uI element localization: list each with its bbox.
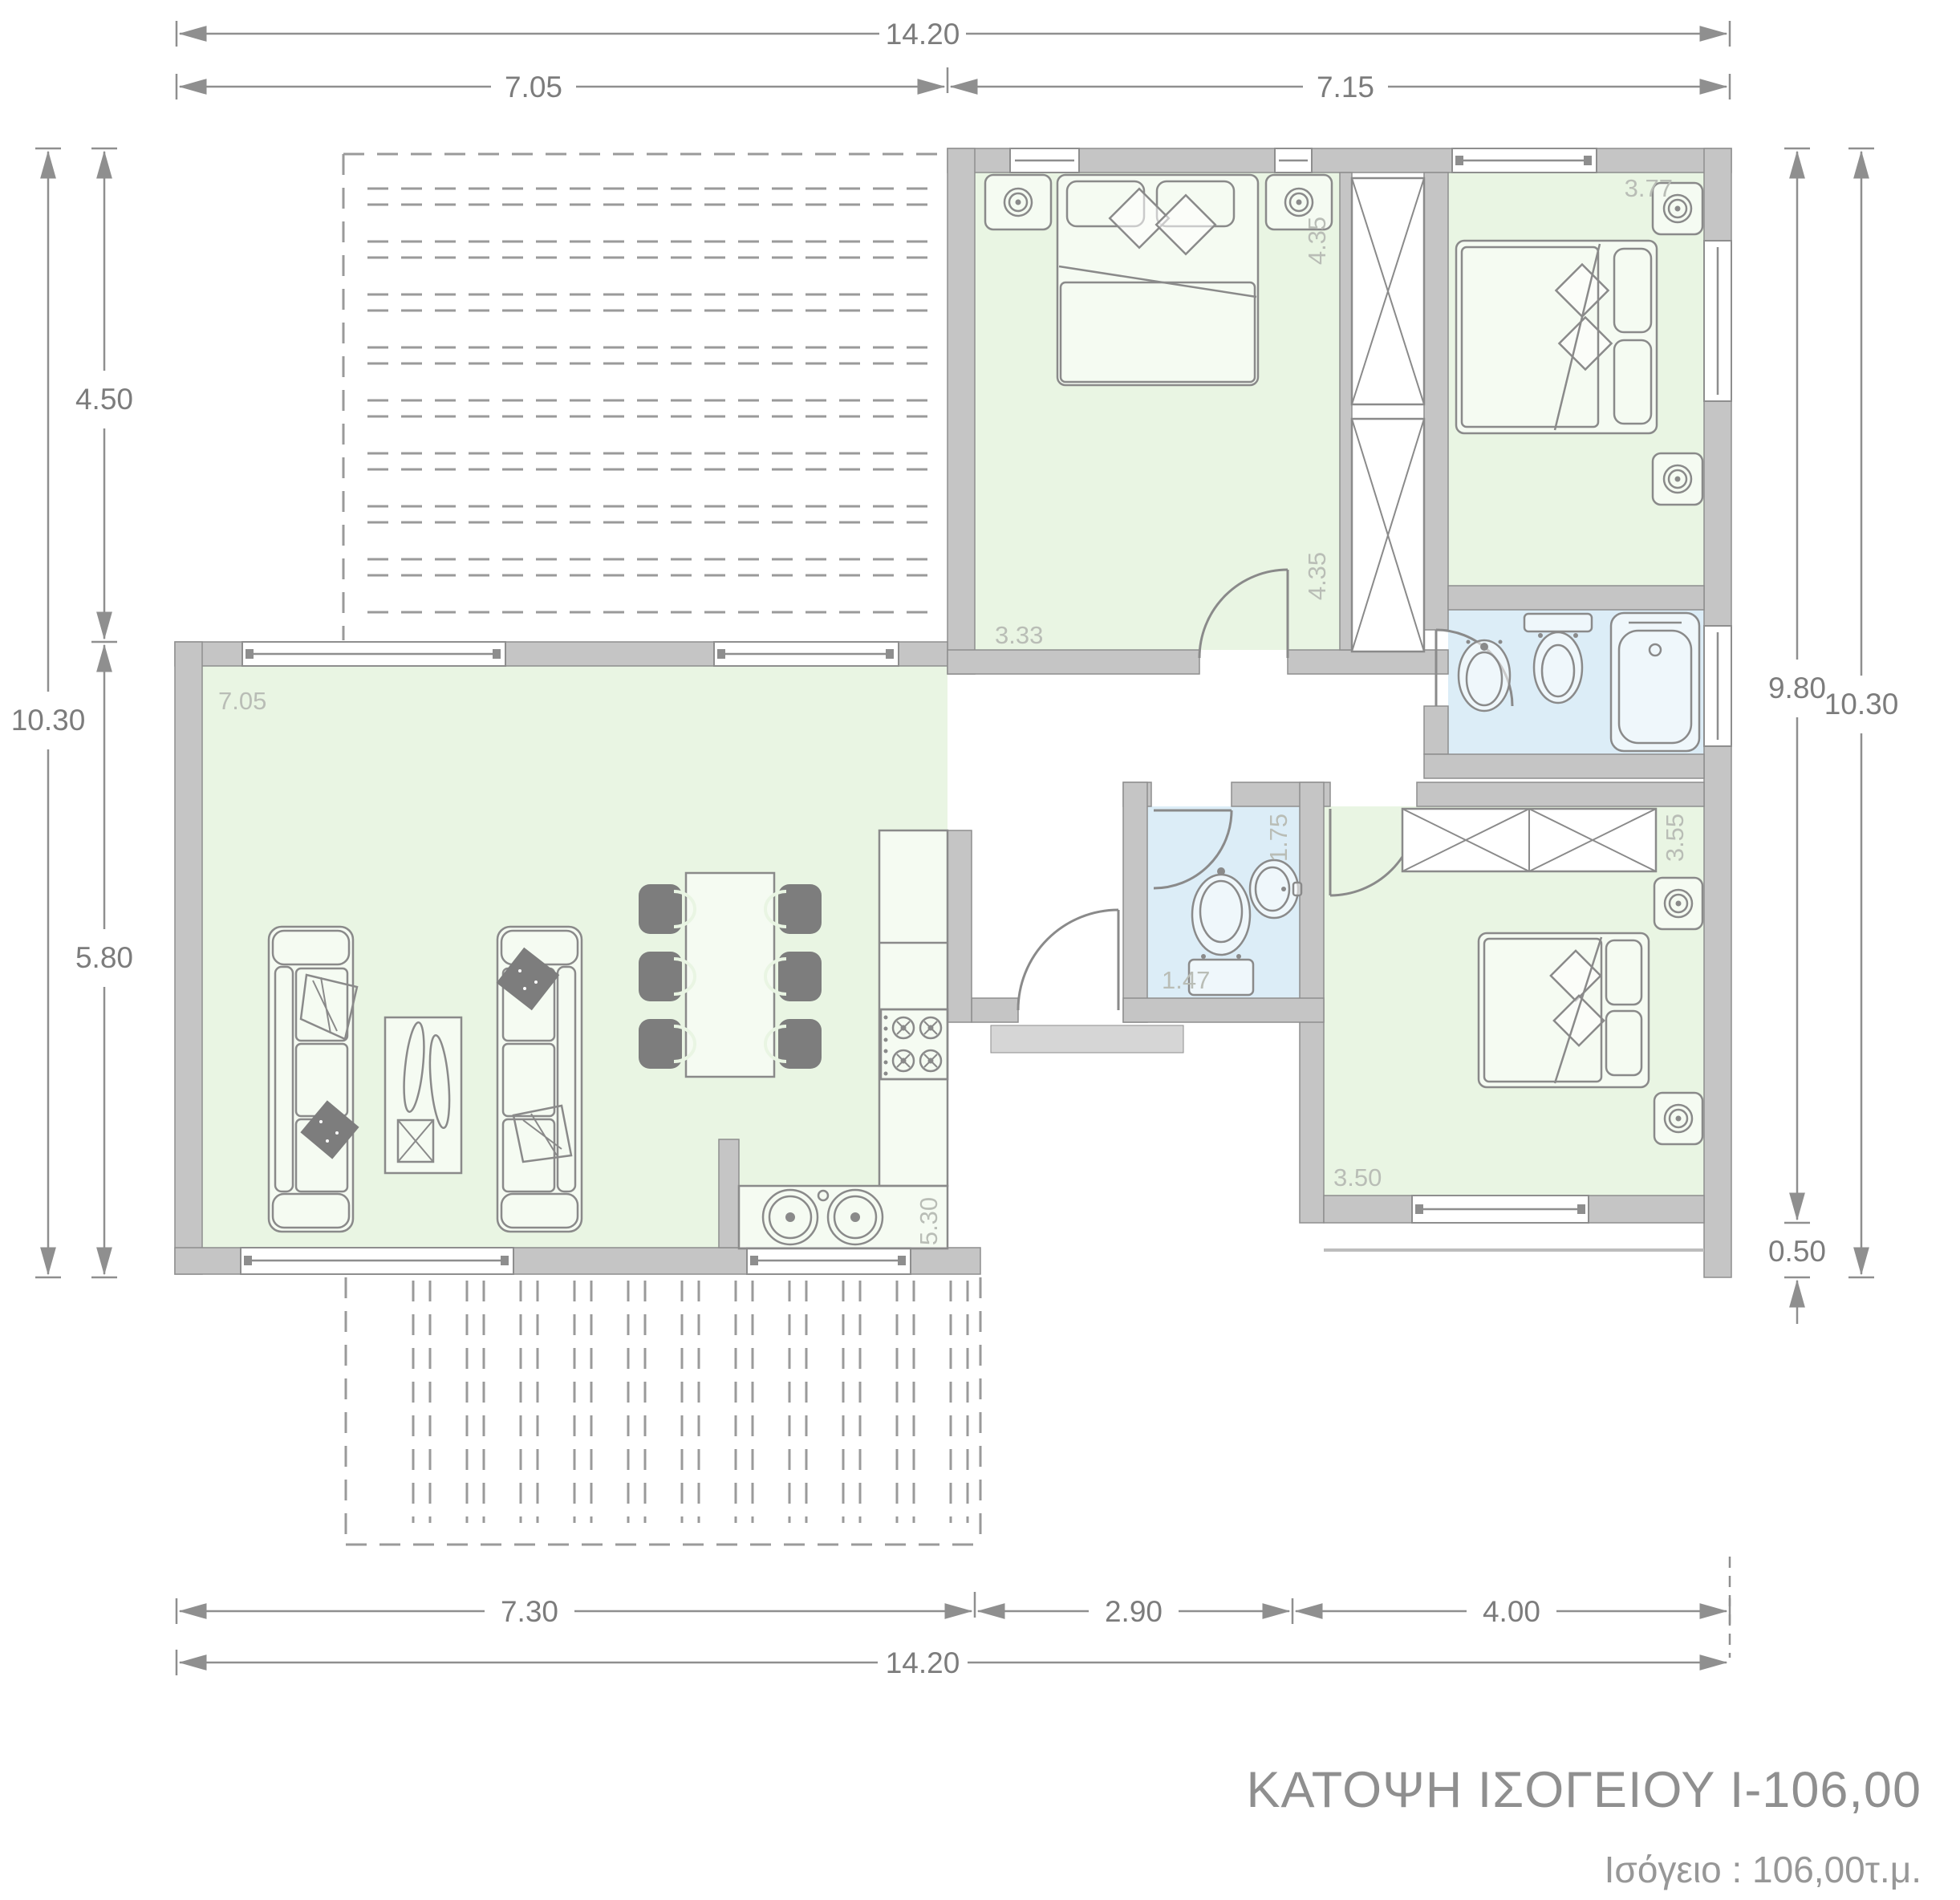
- living-top-window-1: [242, 642, 505, 666]
- bedroom3-width-label: 3.50: [1333, 1163, 1382, 1192]
- hall-wardrobe-upper: [1352, 178, 1424, 404]
- wc-left-wall: [1123, 782, 1147, 1022]
- bedroom1-top-window: [1010, 148, 1079, 173]
- double-bed: [1456, 241, 1657, 433]
- double-bed: [1057, 175, 1258, 385]
- bottom-deck: [346, 1277, 980, 1545]
- nightstand: [985, 175, 1051, 229]
- dim-top-right-wing: 7.15: [1317, 71, 1374, 104]
- bedroom2-depth-label: 3.77: [1625, 174, 1673, 202]
- wc-depth-label: 1.75: [1264, 814, 1292, 862]
- sink: [1459, 640, 1510, 712]
- dim-left-lower: 5.80: [75, 941, 133, 974]
- dim-bottom-overall: 14.20: [886, 1646, 960, 1679]
- dim-bottom-living: 7.30: [501, 1595, 558, 1628]
- nightstand: [1653, 453, 1702, 505]
- floor-plan-page: 7.05 5.30 3.33 4.35 4.35 3.77 1.47 1.75 …: [0, 0, 1960, 1900]
- title-block: ΚΑΤΟΨΗ ΙΣΟΓΕΙΟΥ Ι-106,00 Ισόγειο : 106,0…: [1246, 1762, 1921, 1890]
- bedroom1-depth-label: 4.35: [1303, 217, 1331, 265]
- kitchen-wall: [948, 830, 972, 1022]
- hall-wardrobe-lower: [1352, 419, 1424, 652]
- closet-left-wall: [1340, 173, 1352, 650]
- bedroom2-bottom-wall: [1448, 586, 1704, 610]
- nightstand: [1654, 878, 1702, 929]
- sofa-right: [497, 927, 582, 1232]
- bedroom1-width-label: 3.33: [995, 621, 1043, 649]
- closet-right-wall-lower: [1424, 706, 1448, 754]
- drawing-subtitle: Ισόγειο : 106,00τ.μ.: [1605, 1849, 1921, 1890]
- drawing-title: ΚΑΤΟΨΗ ΙΣΟΓΕΙΟΥ Ι-106,00: [1246, 1762, 1921, 1818]
- entrance-porch-slab: [991, 1025, 1183, 1053]
- kitchen-depth-label: 5.30: [915, 1197, 943, 1245]
- dim-right-main: 9.80: [1768, 672, 1826, 704]
- kitchen-stub-wall: [719, 1139, 739, 1248]
- dining-table: [686, 873, 774, 1077]
- dim-right-overall: 10.30: [1824, 688, 1899, 721]
- sofa-left: [269, 927, 359, 1232]
- floor-plan-svg: 7.05 5.30 3.33 4.35 4.35 3.77 1.47 1.75 …: [0, 0, 1960, 1900]
- kitchen-counter: [879, 830, 948, 1186]
- bedroom2-top-window: [1452, 148, 1597, 173]
- nightstand: [1654, 1093, 1702, 1144]
- deck-board-lines: [413, 1281, 968, 1523]
- closet-right-wall-upper: [1424, 173, 1448, 630]
- bathtub: [1611, 613, 1699, 751]
- bathroom-right-window: [1704, 626, 1731, 746]
- entrance-wall-stub: [972, 998, 1018, 1022]
- bedroom1-bottom-wall-right: [1288, 650, 1448, 674]
- dim-right-step: 0.50: [1768, 1235, 1826, 1268]
- coffee-table: [385, 1017, 461, 1173]
- entrance-door: [1018, 910, 1118, 1010]
- bedroom1-bottom-wall-left: [948, 650, 1199, 674]
- closet-top-window: [1275, 148, 1312, 173]
- dim-left-upper: 4.50: [75, 383, 133, 416]
- living-width-label: 7.05: [218, 687, 266, 715]
- bedroom3-wardrobe: [1402, 809, 1656, 871]
- living-bottom-window-1: [241, 1248, 513, 1274]
- kitchen-bottom-window: [747, 1248, 911, 1274]
- bedroom3-bottom-window: [1412, 1196, 1589, 1223]
- bedroom3-top-wall: [1417, 782, 1704, 806]
- bedroom2-right-window: [1704, 241, 1731, 401]
- living-left-wall: [175, 642, 202, 1274]
- dim-top-left-wing: 7.05: [505, 71, 562, 104]
- dim-top-overall: 14.20: [886, 18, 960, 51]
- bathroom-bottom-wall: [1424, 754, 1704, 778]
- double-bed: [1479, 933, 1649, 1087]
- dim-bottom-bedroom: 4.00: [1483, 1595, 1540, 1628]
- dim-bottom-entrance: 2.90: [1105, 1595, 1163, 1628]
- wc-bottom-wall: [1123, 998, 1324, 1022]
- dim-left-overall: 10.30: [11, 704, 86, 737]
- living-top-window-2: [714, 642, 899, 666]
- bedroom1-depth-label-lower: 4.35: [1303, 552, 1331, 600]
- top-deck: [343, 154, 948, 640]
- wing-divider-wall: [948, 148, 975, 674]
- deck-board-lines: [367, 189, 940, 612]
- bedroom3-depth-label: 3.55: [1661, 814, 1689, 862]
- wc-width-label: 1.47: [1162, 966, 1210, 994]
